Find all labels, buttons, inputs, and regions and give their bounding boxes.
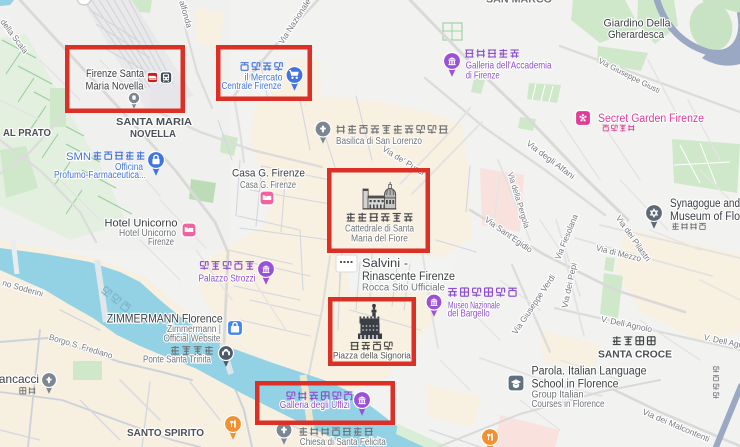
svg-text:Rinascente Firenze: Rinascente Firenze: [362, 271, 455, 283]
svg-text:Gherardesca: Gherardesca: [608, 29, 665, 41]
svg-text:Giardino Della: Giardino Della: [604, 18, 672, 30]
svg-text:Profumo-Farmaceutica...: Profumo-Farmaceutica...: [54, 170, 146, 181]
svg-text:Galleria degli Uffizi: Galleria degli Uffizi: [280, 399, 350, 411]
svg-text:di Firenze: di Firenze: [466, 70, 500, 82]
svg-text:SANTA MARIA: SANTA MARIA: [116, 117, 192, 128]
svg-text:Synagogue and: Synagogue and: [670, 198, 740, 210]
svg-text:Parola. Italian Language: Parola. Italian Language: [532, 366, 647, 378]
svg-text:Basilica di San Lorenzo: Basilica di San Lorenzo: [336, 136, 422, 147]
svg-text:Piazza della Signoria: Piazza della Signoria: [333, 351, 412, 362]
svg-text:rancacci: rancacci: [0, 372, 39, 386]
svg-text:SANTO SPIRITO: SANTO SPIRITO: [127, 428, 204, 439]
svg-text:SANTA CROCE: SANTA CROCE: [598, 350, 672, 361]
svg-text:Chiesa di Santa Felicita: Chiesa di Santa Felicita: [300, 436, 386, 447]
svg-text:Firenze Santa: Firenze Santa: [86, 68, 145, 80]
svg-text:Secret Garden Firenze: Secret Garden Firenze: [598, 113, 704, 125]
svg-text:Official Website: Official Website: [164, 334, 221, 345]
svg-text:Casa G. Firenze: Casa G. Firenze: [240, 180, 296, 191]
svg-text:SAN MARCO: SAN MARCO: [486, 0, 552, 6]
svg-text:Palazzo Strozzi: Palazzo Strozzi: [199, 273, 256, 285]
svg-text:Salvini -: Salvini -: [362, 258, 408, 270]
svg-text:Museum of Flo: Museum of Flo: [670, 211, 740, 223]
svg-text:del Bargello: del Bargello: [448, 309, 490, 320]
svg-text:Maria del Fiore: Maria del Fiore: [351, 234, 408, 245]
svg-text:Centrale Firenze: Centrale Firenze: [222, 80, 282, 92]
svg-text:AL PRATO: AL PRATO: [3, 128, 51, 139]
svg-text:Maria Novella: Maria Novella: [86, 81, 145, 93]
svg-text:Rocca Sito Ufficiale: Rocca Sito Ufficiale: [362, 283, 445, 294]
svg-text:Casa G. Firenze: Casa G. Firenze: [232, 168, 305, 180]
svg-text:Courses in Florence: Courses in Florence: [532, 399, 605, 410]
svg-text:SMN: SMN: [66, 151, 91, 163]
svg-text:Firenze: Firenze: [148, 237, 174, 248]
svg-text:NOVELLA: NOVELLA: [130, 129, 176, 140]
svg-text:Ponte Santa Trinita: Ponte Santa Trinita: [143, 354, 211, 366]
